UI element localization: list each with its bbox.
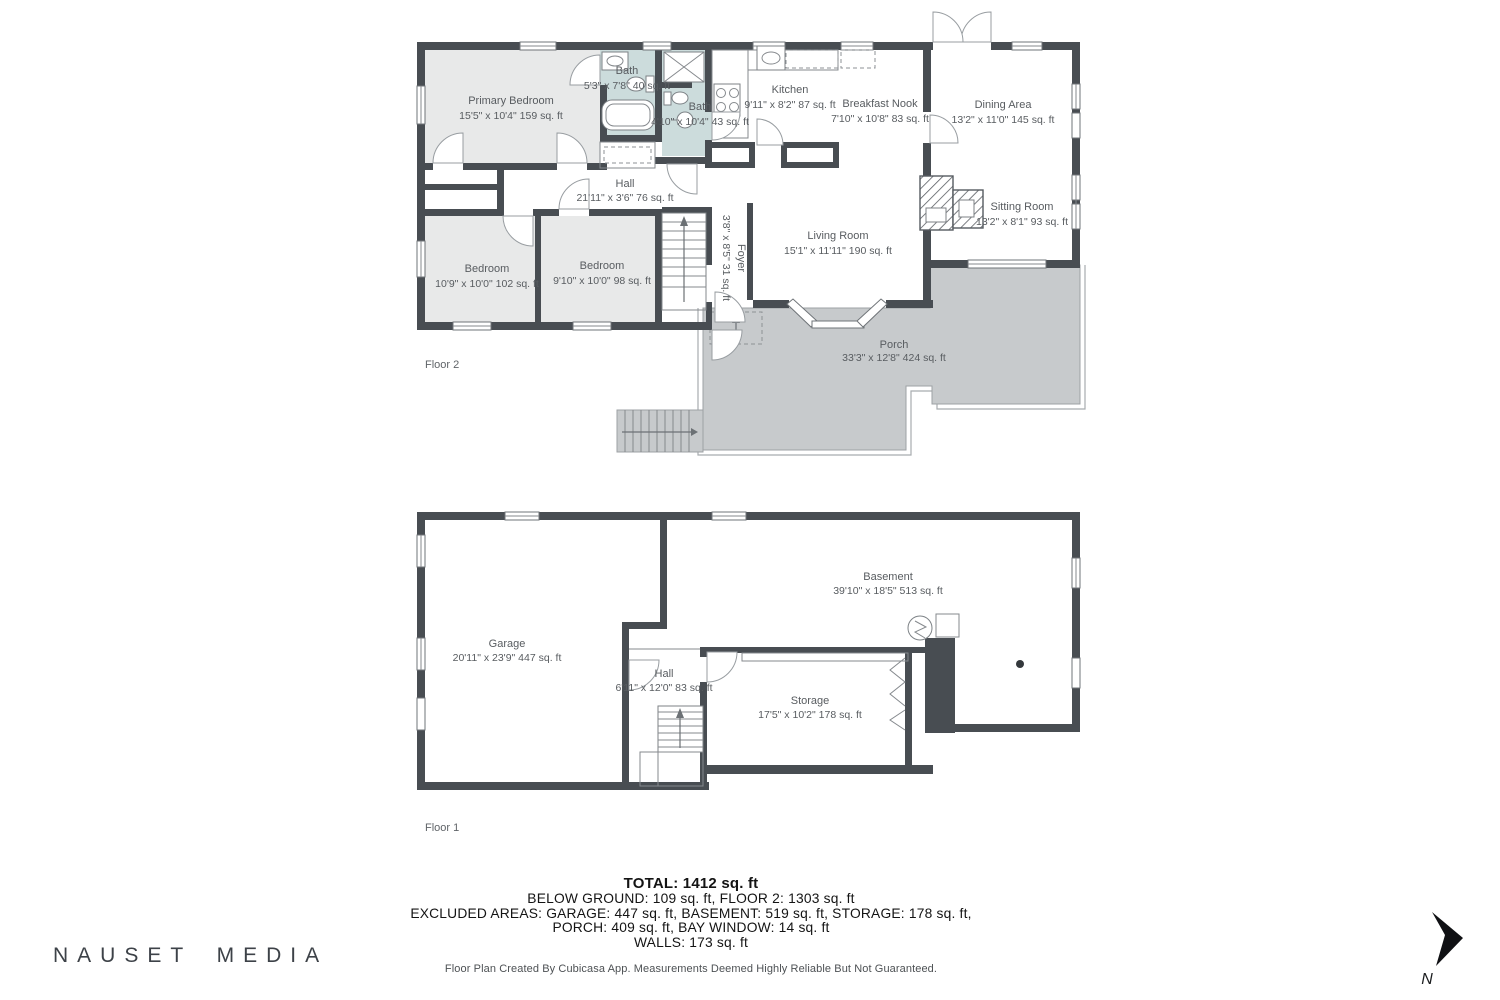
f1-basement-dims: 39'10" x 18'5" 513 sq. ft <box>833 585 943 597</box>
summary-below-ground: BELOW GROUND: 109 sq. ft, FLOOR 2: 1303 … <box>0 892 1382 907</box>
f2-dining-area-name: Dining Area <box>975 99 1033 111</box>
summary-excluded2: PORCH: 409 sq. ft, BAY WINDOW: 14 sq. ft <box>0 921 1382 936</box>
floor-plan-canvas: Primary Bedroom 15'5" x 10'4" 159 sq. ft… <box>0 0 1500 1000</box>
fireplace <box>920 176 983 230</box>
f2-bath-b-name: Bath <box>689 101 712 113</box>
floor1-walls <box>417 512 1080 790</box>
floor2-plan: Primary Bedroom 15'5" x 10'4" 159 sq. ft… <box>417 12 1085 455</box>
f2-porch-dims: 33'3" x 12'8" 424 sq. ft <box>842 352 946 364</box>
f1-basement-name: Basement <box>863 571 913 583</box>
stairs-down <box>640 706 703 786</box>
floor2-label: Floor 2 <box>425 359 459 371</box>
f2-bedroom-b-name: Bedroom <box>580 260 625 272</box>
f2-living-room-dims: 15'1" x 11'11" 190 sq. ft <box>784 245 892 257</box>
stove-icon <box>714 84 740 116</box>
f2-dining-area-dims: 13'2" x 11'0" 145 sq. ft <box>952 114 1055 126</box>
f2-bedroom-a-name: Bedroom <box>465 263 510 275</box>
summary-excluded: EXCLUDED AREAS: GARAGE: 447 sq. ft, BASE… <box>0 907 1382 922</box>
f2-bath-a-dims: 5'3" x 7'8" 40 sq. ft <box>584 80 670 92</box>
f1-hall-name: Hall <box>655 668 674 680</box>
f2-breakfast-nook-name: Breakfast Nook <box>842 98 918 110</box>
f2-foyer-dims: 3'8" x 8'5" 31 sq. ft <box>720 215 732 301</box>
floor1-labels: Garage 20'11" x 23'9" 447 sq. ft Basemen… <box>425 571 943 834</box>
f2-foyer-name: Foyer <box>735 244 747 272</box>
f2-kitchen-dims: 9'11" x 8'2" 87 sq. ft <box>744 99 835 111</box>
f2-bedroom-b-dims: 9'10" x 10'0" 98 sq. ft <box>553 275 651 287</box>
f2-living-room-name: Living Room <box>807 230 868 242</box>
north-arrow-icon: N <box>1421 912 1463 988</box>
linen-closet <box>600 142 655 168</box>
stairs-up <box>662 213 706 310</box>
floor1-label: Floor 1 <box>425 822 459 834</box>
f2-porch-name: Porch <box>880 339 909 351</box>
f2-sitting-room-name: Sitting Room <box>991 201 1054 213</box>
f2-hall-name: Hall <box>616 178 635 190</box>
f2-bath-b-dims: 4'10" x 10'4" 43 sq. ft <box>651 116 749 128</box>
porch-steps <box>617 410 703 452</box>
floor-plan-page: { "floor2": { "label": "Floor 2", "rooms… <box>0 0 1500 1000</box>
f1-hall-dims: 6'11" x 12'0" 83 sq. ft <box>615 682 712 694</box>
floor1-plan: Garage 20'11" x 23'9" 447 sq. ft Basemen… <box>417 512 1080 834</box>
f2-primary-bedroom-dims: 15'5" x 10'4" 159 sq. ft <box>459 110 563 122</box>
f1-storage-name: Storage <box>791 695 830 707</box>
water-heater-icon <box>908 614 959 640</box>
support-post-marker <box>1016 660 1024 668</box>
f1-garage-name: Garage <box>489 638 526 650</box>
f2-bedroom-a-dims: 10'9" x 10'0" 102 sq. ft <box>435 278 539 290</box>
storage-shelf <box>742 653 908 661</box>
f2-hall-dims: 21'11" x 3'6" 76 sq. ft <box>576 192 673 204</box>
f2-kitchen-name: Kitchen <box>772 84 809 96</box>
f2-bath-a-name: Bath <box>616 65 639 77</box>
summary-total: TOTAL: 1412 sq. ft <box>0 876 1382 892</box>
north-label: N <box>1421 971 1433 988</box>
floor1-windows <box>417 512 1080 730</box>
f1-storage-dims: 17'5" x 10'2" 178 sq. ft <box>758 709 862 721</box>
f2-sitting-room-dims: 13'2" x 8'1" 93 sq. ft <box>976 216 1068 228</box>
kitchen-sink-icon <box>757 46 785 70</box>
watermark-logo: NAUSET MEDIA <box>53 944 328 968</box>
f2-breakfast-nook-dims: 7'10" x 10'8" 83 sq. ft <box>831 113 929 125</box>
f2-primary-bedroom-name: Primary Bedroom <box>468 95 554 107</box>
bifold-door-icon <box>890 658 905 730</box>
f1-garage-dims: 20'11" x 23'9" 447 sq. ft <box>453 652 562 664</box>
